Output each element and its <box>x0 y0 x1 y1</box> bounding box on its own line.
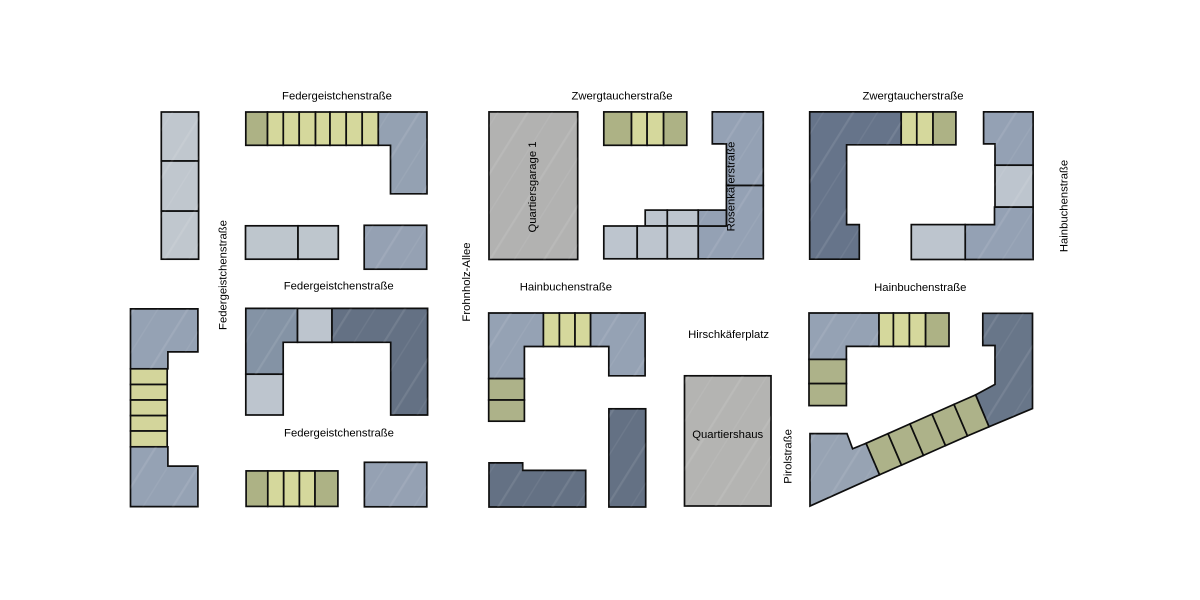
svg-text:Federgeistchenstraße: Federgeistchenstraße <box>218 220 230 330</box>
svg-text:Zwergtaucherstraße: Zwergtaucherstraße <box>571 91 672 103</box>
svg-text:Federgeistchenstraße: Federgeistchenstraße <box>284 428 394 440</box>
svg-text:Quartiershaus: Quartiershaus <box>692 429 763 441</box>
svg-text:Hainbuchenstraße: Hainbuchenstraße <box>520 282 612 294</box>
svg-text:Hirschkäferplatz: Hirschkäferplatz <box>688 329 769 341</box>
svg-text:Rosenkäferstraße: Rosenkäferstraße <box>726 142 738 232</box>
svg-text:Federgeistchenstraße: Federgeistchenstraße <box>284 281 394 293</box>
svg-text:Hainbuchenstraße: Hainbuchenstraße <box>874 282 966 294</box>
svg-text:Hainbuchenstraße: Hainbuchenstraße <box>1059 160 1071 252</box>
svg-text:Federgeistchenstraße: Federgeistchenstraße <box>282 91 392 103</box>
svg-text:Pirolstraße: Pirolstraße <box>783 429 795 484</box>
svg-text:Quartiersgarage 1: Quartiersgarage 1 <box>527 141 539 232</box>
svg-text:Frohnholz-Allee: Frohnholz-Allee <box>461 242 473 321</box>
svg-text:Zwergtaucherstraße: Zwergtaucherstraße <box>862 91 963 103</box>
